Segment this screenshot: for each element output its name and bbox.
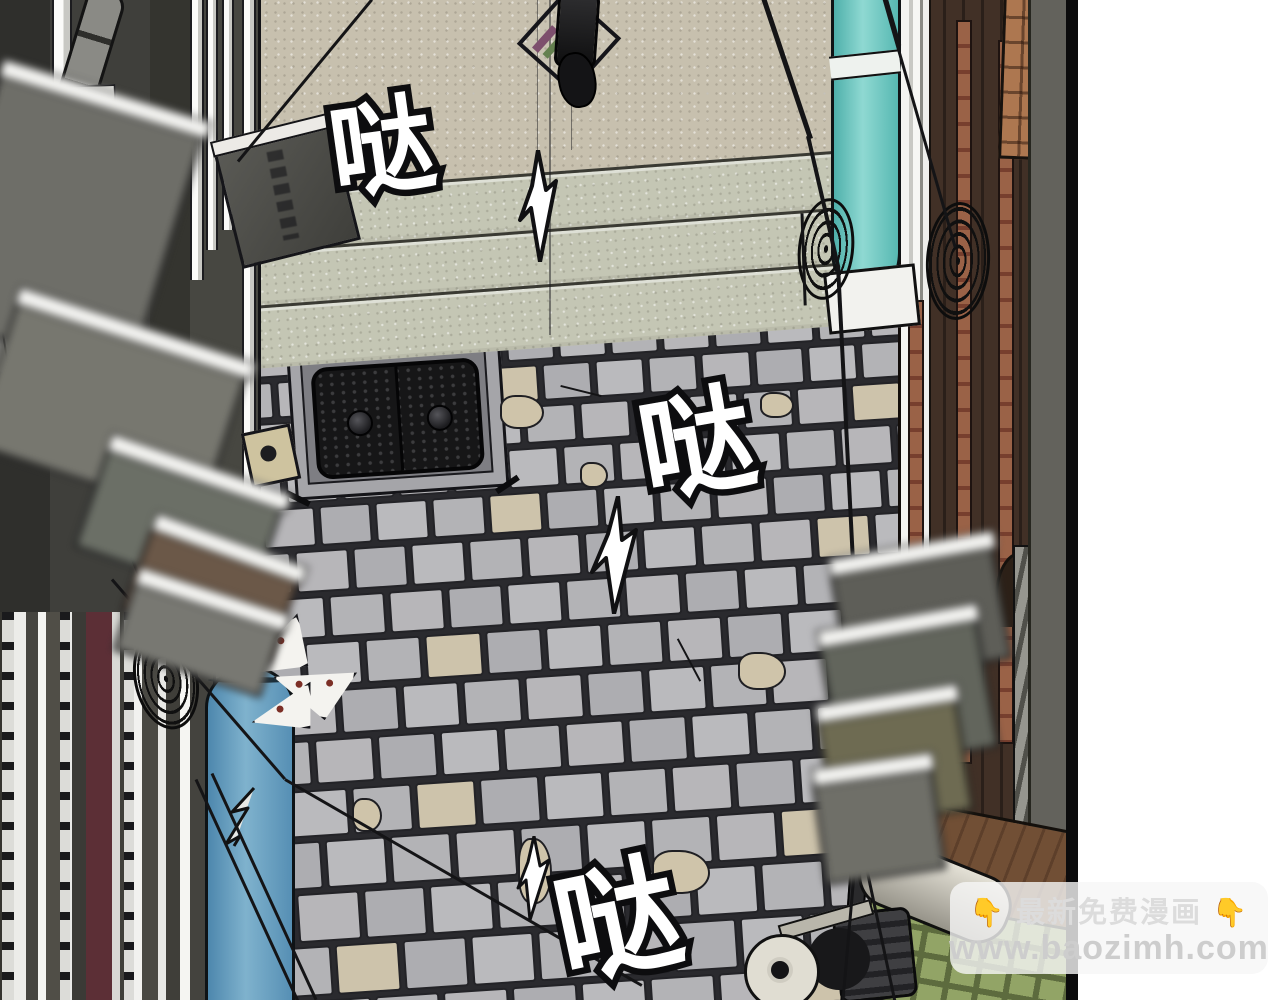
paving-brick bbox=[402, 936, 469, 990]
umbrella-dot bbox=[276, 705, 284, 713]
pavement-damage-patch bbox=[500, 395, 544, 429]
pavement-damage-patch bbox=[738, 652, 786, 690]
paving-brick bbox=[579, 399, 632, 440]
paving-brick bbox=[352, 544, 409, 589]
paving-brick bbox=[524, 673, 584, 722]
sfx-text: 哒 bbox=[323, 89, 440, 206]
cable-spool-wheel bbox=[744, 934, 820, 1000]
paving-brick bbox=[760, 859, 826, 912]
sfx-text: 哒 bbox=[544, 848, 691, 995]
paving-brick bbox=[429, 881, 495, 934]
comic-panel: 哒 哒 哒 bbox=[0, 0, 1078, 1000]
paving-brick bbox=[690, 711, 752, 761]
paving-brick bbox=[318, 502, 373, 546]
manhole-frame bbox=[300, 349, 494, 485]
paving-brick bbox=[364, 636, 423, 683]
manhole-grate-split bbox=[394, 367, 404, 471]
paving-brick bbox=[377, 731, 439, 781]
paving-brick bbox=[666, 616, 725, 663]
tank-band bbox=[829, 49, 901, 80]
paving-brick bbox=[488, 491, 543, 535]
panel-border bbox=[1066, 0, 1078, 1000]
watermark-title: 最新免费漫画 bbox=[1016, 897, 1202, 929]
paving-brick bbox=[375, 992, 443, 1000]
webtoon-page: 哒 哒 哒 👇 最新免费漫画 👇 www.baozimh.com bbox=[0, 0, 1280, 1000]
lamp-lens bbox=[259, 444, 278, 463]
paving-brick bbox=[605, 620, 664, 667]
watermark-title-row: 👇 最新免费漫画 👇 bbox=[969, 889, 1249, 931]
watermark-url[interactable]: www.baozimh.com bbox=[949, 929, 1269, 968]
paving-brick bbox=[683, 568, 741, 614]
point-down-icon: 👇 bbox=[1212, 897, 1249, 928]
paving-brick bbox=[375, 498, 430, 542]
paving-brick bbox=[447, 584, 505, 630]
manhole-handle bbox=[426, 404, 454, 432]
paving-brick bbox=[439, 727, 501, 777]
paving-brick bbox=[757, 517, 814, 562]
paving-brick bbox=[502, 723, 564, 773]
paving-brick bbox=[715, 810, 779, 862]
paving-brick bbox=[753, 706, 815, 756]
paving-brick bbox=[485, 628, 544, 675]
paving-brick bbox=[468, 537, 525, 582]
umbrella-dot bbox=[326, 679, 334, 687]
paving-brick bbox=[699, 521, 756, 566]
paving-brick bbox=[470, 932, 537, 986]
paving-brick bbox=[670, 762, 733, 813]
paving-brick bbox=[742, 564, 800, 610]
paving-brick bbox=[607, 766, 670, 817]
pavement-damage-patch bbox=[580, 462, 608, 488]
paving-brick bbox=[454, 827, 518, 879]
paving-brick bbox=[642, 525, 699, 570]
paving-brick bbox=[541, 361, 593, 401]
paving-brick bbox=[526, 533, 583, 578]
speedline-mark bbox=[588, 496, 638, 614]
paving-brick bbox=[807, 343, 859, 383]
paving-brick bbox=[828, 468, 883, 512]
signboard-faint-text bbox=[266, 149, 299, 240]
spool-hub bbox=[771, 961, 789, 979]
watermark: 👇 最新免费漫画 👇 www.baozimh.com bbox=[950, 882, 1268, 974]
paving-brick bbox=[425, 632, 484, 679]
paving-brick bbox=[324, 836, 388, 888]
umbrella-dot bbox=[295, 680, 303, 688]
paving-brick bbox=[463, 677, 523, 726]
paving-brick bbox=[363, 885, 429, 938]
paving-brick bbox=[784, 428, 838, 471]
pavement-damage-patch bbox=[760, 392, 794, 418]
paving-brick bbox=[850, 381, 903, 422]
paving-brick bbox=[506, 580, 564, 626]
paving-brick bbox=[754, 347, 806, 387]
paving-brick bbox=[410, 540, 467, 585]
point-down-icon: 👇 bbox=[969, 897, 1006, 928]
paving-brick bbox=[647, 665, 707, 714]
paving-brick bbox=[431, 495, 486, 539]
manhole-handle bbox=[346, 409, 374, 437]
paving-brick bbox=[443, 988, 511, 1000]
speedline-mark bbox=[516, 150, 558, 262]
paving-brick bbox=[771, 472, 826, 516]
paving-brick bbox=[415, 779, 478, 830]
facade-window-column bbox=[2, 612, 14, 1000]
paving-brick bbox=[734, 758, 797, 809]
paving-brick bbox=[545, 624, 604, 671]
paving-brick bbox=[565, 719, 627, 769]
manhole-grate bbox=[310, 357, 485, 480]
paving-brick bbox=[296, 890, 362, 943]
paving-brick bbox=[335, 941, 402, 995]
paving-brick bbox=[543, 770, 606, 821]
paving-brick bbox=[586, 669, 646, 718]
facade-window-column bbox=[60, 612, 70, 1000]
blurred-signboard bbox=[811, 764, 947, 886]
paving-brick bbox=[401, 681, 461, 730]
paving-brick bbox=[627, 715, 689, 765]
paving-brick bbox=[479, 775, 542, 826]
paving-brick bbox=[388, 587, 446, 633]
sfx-text: 哒 bbox=[631, 379, 763, 511]
paving-brick bbox=[796, 385, 849, 426]
